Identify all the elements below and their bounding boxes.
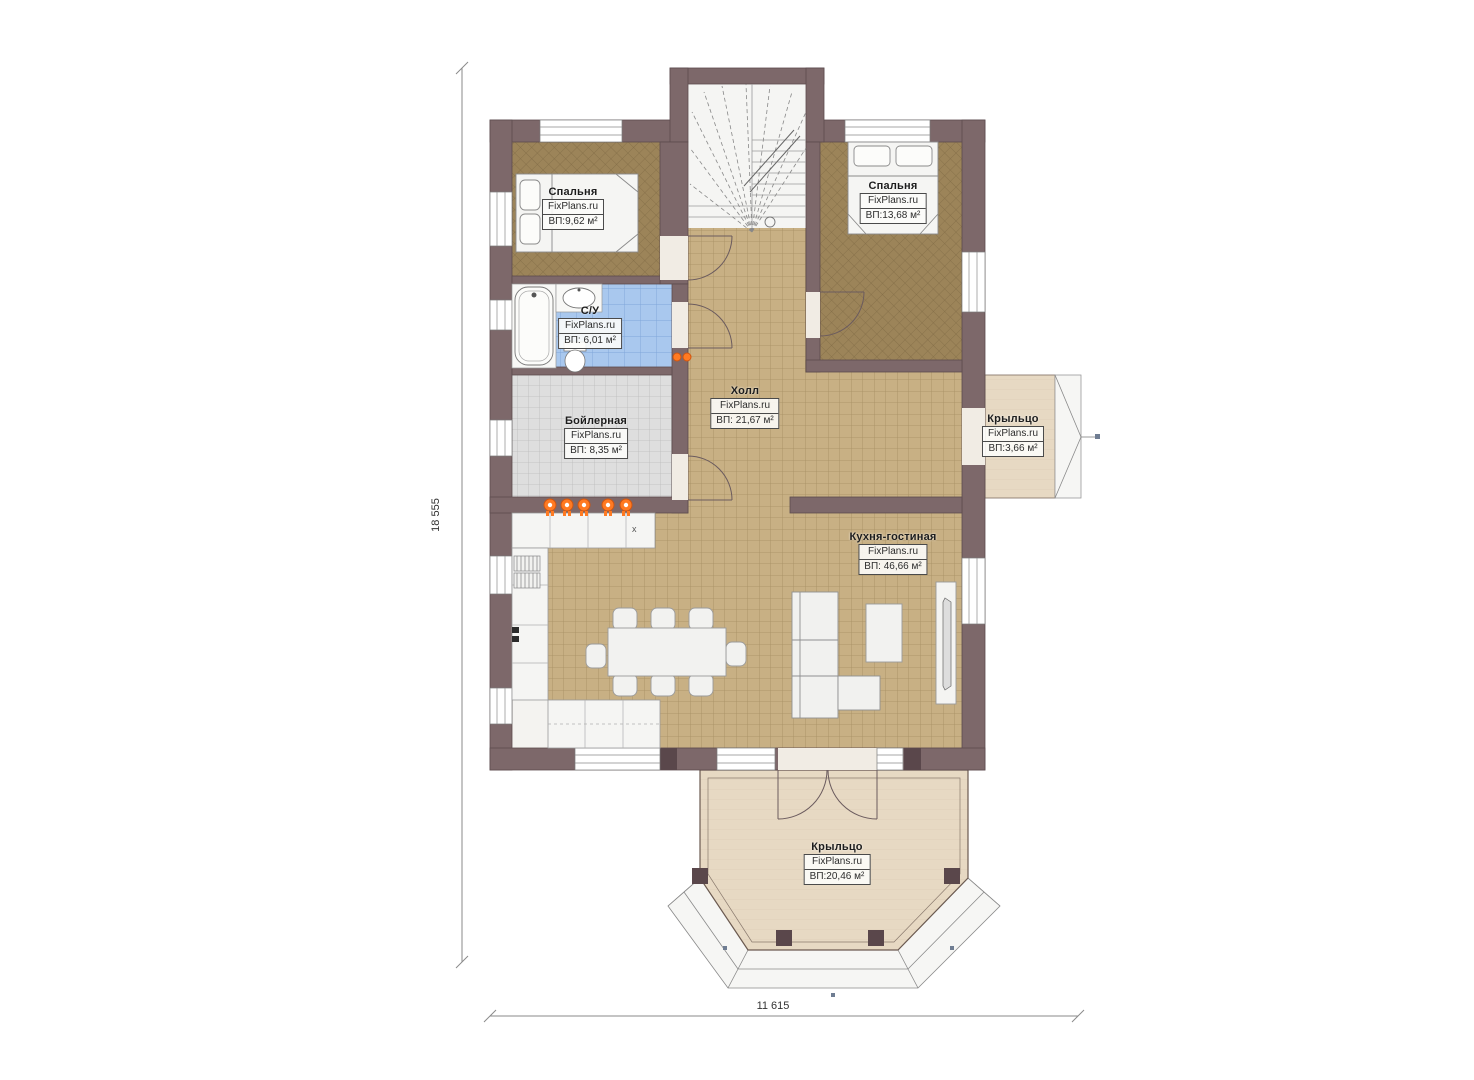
room-label-kitchen-living: Кухня-гостиная FixPlans.ru ВП: 46,66 м² [849, 531, 936, 575]
watermark: FixPlans.ru [861, 194, 926, 209]
sink-mark: x [632, 524, 637, 534]
appliance-dryer [514, 573, 540, 588]
room-area: ВП:13,68 м² [861, 209, 926, 223]
room-area: ВП: 8,35 м² [565, 444, 627, 458]
appliance-washer [514, 556, 540, 571]
room-area: ВП:9,62 м² [543, 215, 603, 229]
room-name: Спальня [542, 186, 604, 198]
room-name: Холл [710, 385, 779, 397]
watermark: FixPlans.ru [805, 855, 870, 870]
tv-unit [936, 582, 956, 704]
room-area: ВП: 6,01 м² [559, 334, 621, 348]
room-name: Крыльцо [804, 841, 871, 853]
bathtub [515, 287, 553, 365]
room-label-porch-bottom: Крыльцо FixPlans.ru ВП:20,46 м² [804, 841, 871, 885]
coffee-table [866, 604, 902, 662]
dimension-horizontal: 11 615 [757, 1000, 790, 1012]
room-area: ВП:20,46 м² [805, 870, 870, 884]
room-label-bathroom: С/У FixPlans.ru ВП: 6,01 м² [558, 305, 622, 349]
room-label-porch-right: Крыльцо FixPlans.ru ВП:3,66 м² [982, 413, 1044, 457]
watermark: FixPlans.ru [983, 427, 1043, 442]
dimension-vertical: 18 555 [430, 498, 442, 532]
dining-table [608, 628, 726, 676]
watermark: FixPlans.ru [559, 319, 621, 334]
room-area: ВП:3,66 м² [983, 442, 1043, 456]
electrical-panel [512, 627, 519, 633]
room-label-bedroom-right: Спальня FixPlans.ru ВП:13,68 м² [860, 180, 927, 224]
room-label-boiler: Бойлерная FixPlans.ru ВП: 8,35 м² [564, 415, 628, 459]
room-area: ВП: 21,67 м² [711, 414, 778, 428]
watermark: FixPlans.ru [711, 399, 778, 414]
floor-plan-drawing: x [0, 0, 1474, 1080]
tv [943, 598, 951, 690]
watermark: FixPlans.ru [859, 545, 926, 560]
watermark: FixPlans.ru [543, 200, 603, 215]
floor-plan-canvas: x [0, 0, 1474, 1080]
room-name: Спальня [860, 180, 927, 192]
room-label-bedroom-left: Спальня FixPlans.ru ВП:9,62 м² [542, 186, 604, 230]
room-name: Бойлерная [564, 415, 628, 427]
room-area: ВП: 46,66 м² [859, 560, 926, 574]
room-name: Крыльцо [982, 413, 1044, 425]
room-label-hall: Холл FixPlans.ru ВП: 21,67 м² [710, 385, 779, 429]
porch-right-steps [1055, 375, 1081, 498]
room-name: С/У [558, 305, 622, 317]
room-name: Кухня-гостиная [849, 531, 936, 543]
watermark: FixPlans.ru [565, 429, 627, 444]
